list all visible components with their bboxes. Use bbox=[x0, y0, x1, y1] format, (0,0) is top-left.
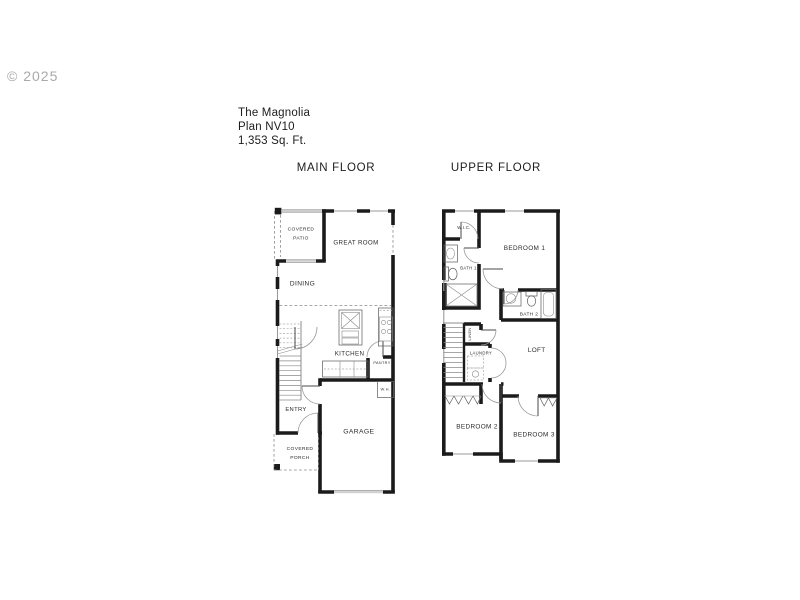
washer bbox=[468, 356, 484, 368]
room-label-bedroom-2: BEDROOM 2 bbox=[456, 424, 498, 431]
room-label-covered-porch: COVERED bbox=[287, 446, 314, 452]
stairs-main bbox=[278, 321, 303, 400]
bath1-fixtures bbox=[444, 245, 477, 306]
main-floor-dashed-outlines bbox=[274, 211, 393, 470]
upper-floor-plan: W.I.C. BEDROOM 1 BATH 1 BATH 2 LINEN LAU… bbox=[436, 196, 570, 472]
main-floor-heading: MAIN FLOOR bbox=[266, 162, 406, 174]
bedroom3-closet-bifold bbox=[540, 398, 557, 406]
room-label-wic: W.I.C. bbox=[457, 225, 471, 230]
kitchen-fixtures bbox=[323, 308, 394, 377]
room-label-great-room: GREAT ROOM bbox=[333, 240, 378, 247]
bath2-toilet bbox=[527, 296, 535, 306]
stairs-upper bbox=[443, 323, 464, 378]
room-label-bedroom-3: BEDROOM 3 bbox=[513, 432, 555, 439]
garage-door bbox=[334, 490, 383, 492]
room-label-kitchen: KITCHEN bbox=[335, 351, 365, 358]
room-label-pantry: PANTRY bbox=[373, 361, 390, 365]
room-label-linen: LINEN bbox=[468, 328, 472, 341]
upper-floor-heading: UPPER FLOOR bbox=[426, 162, 566, 174]
bath1-vanity bbox=[444, 245, 458, 262]
room-label-laundry: LAUNDRY bbox=[470, 351, 492, 356]
room-label-covered-porch-2: PORCH bbox=[290, 455, 310, 461]
range-counter bbox=[379, 308, 394, 346]
room-label-bath-2: BATH 2 bbox=[520, 312, 539, 318]
room-label-bath-1: BATH 1 bbox=[460, 266, 477, 271]
copyright-watermark: © 2025 bbox=[7, 68, 58, 84]
upper-floor-labels: W.I.C. BEDROOM 1 BATH 1 BATH 2 LINEN LAU… bbox=[456, 225, 555, 439]
room-label-loft: LOFT bbox=[528, 347, 546, 354]
room-label-dining: DINING bbox=[290, 281, 315, 288]
room-label-wh: W.H. bbox=[381, 388, 391, 392]
dryer bbox=[468, 368, 484, 380]
room-label-entry: ENTRY bbox=[285, 407, 306, 413]
main-floor-plan: COVERED PATIO GREAT ROOM DINING KITCHEN … bbox=[266, 192, 406, 504]
room-label-covered-patio-2: PATIO bbox=[293, 236, 309, 242]
bath2-toilet-tank bbox=[526, 292, 537, 297]
bedroom2-closet-bifold bbox=[445, 396, 481, 404]
plan-name: The Magnolia bbox=[238, 106, 310, 120]
laundry-fixtures bbox=[468, 356, 484, 380]
room-label-garage: GARAGE bbox=[343, 429, 374, 436]
room-label-covered-patio: COVERED bbox=[288, 227, 315, 233]
room-label-bedroom-1: BEDROOM 1 bbox=[504, 245, 546, 252]
plan-area: 1,353 Sq. Ft. bbox=[238, 134, 310, 148]
plan-number: Plan NV10 bbox=[238, 120, 310, 134]
plan-title-block: The Magnolia Plan NV10 1,353 Sq. Ft. bbox=[238, 106, 310, 148]
bath1-toilet bbox=[449, 268, 458, 280]
floorplan-sheet: © 2025 The Magnolia Plan NV10 1,353 Sq. … bbox=[0, 0, 800, 600]
bath1-sink bbox=[447, 248, 455, 259]
